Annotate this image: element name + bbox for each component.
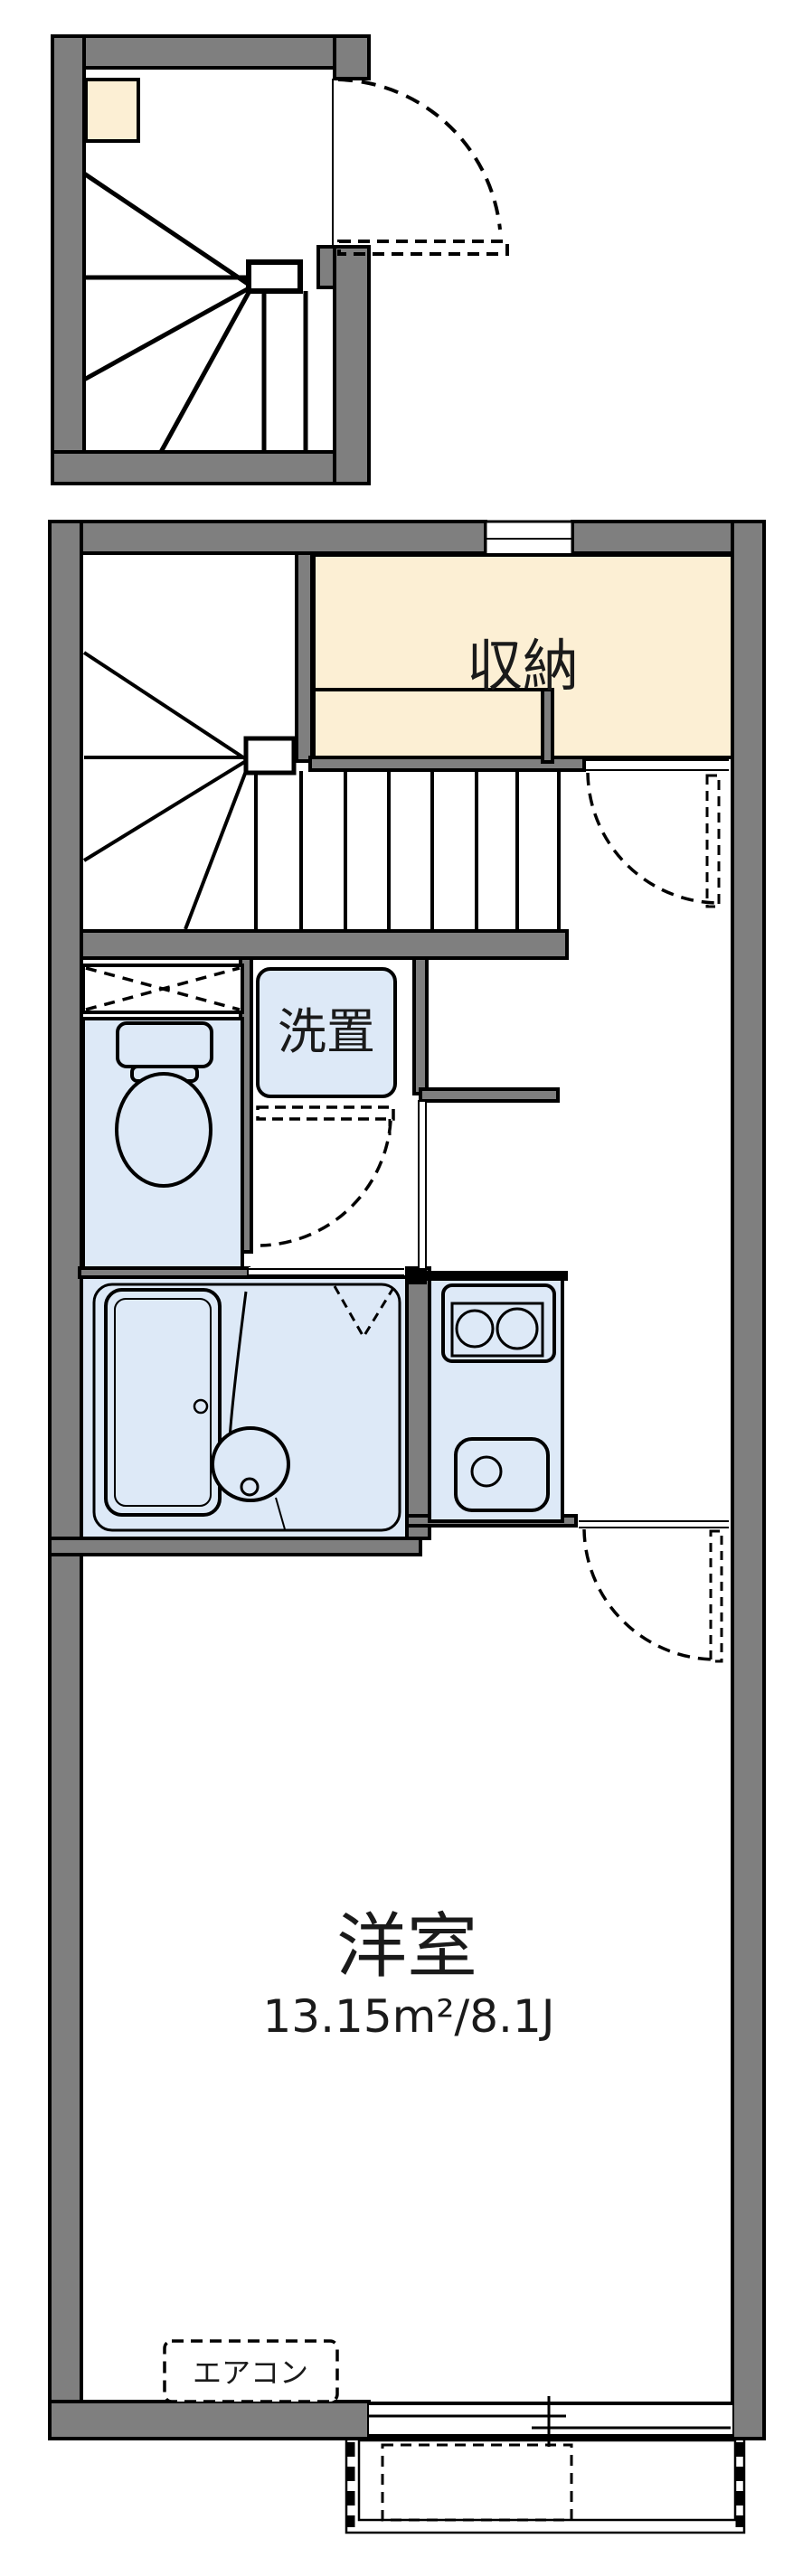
winder-stairs-1f [84,174,306,452]
closet-box-1f [86,80,138,141]
stairwell-1f [52,36,507,484]
laundry-label: 洗置 [278,1003,375,1060]
wall [297,553,312,761]
stair-tread [84,761,246,860]
lavatory-door-arc [260,1121,391,1246]
closet-label: 収納 [467,633,579,699]
bathroom [81,1267,407,1538]
balcony-hatch [382,2445,571,2520]
wall [50,2402,369,2439]
wall [335,36,369,79]
floor-plan-page: 収納 [0,0,812,2576]
hall-door [586,760,729,907]
aircon-label: エアコン [193,2355,308,2390]
main-room-door [579,1521,729,1661]
main-room-label: 洋室 [336,1906,477,1988]
aircon-box: エアコン [165,2341,337,2402]
kitchen-counter [426,1271,568,1521]
lavatory-door-leaf [258,1107,393,1119]
lavatory-door [258,1107,393,1246]
wall [50,1538,420,1555]
fridge-niche-wall [420,1089,558,1101]
stair-tread [84,174,250,286]
partition-line [419,1101,426,1271]
window-top [486,522,572,559]
hall-door-arc [588,773,716,903]
wall [732,522,764,2439]
balcony [346,2439,744,2533]
wall [52,452,369,484]
floor-plan-drawing: 収納 [0,0,812,2576]
laundry-pan: 洗置 [258,969,395,1096]
hall-door-leaf [707,776,719,907]
toilet-fixture [117,1023,212,1186]
wall [407,1268,430,1538]
wall [335,247,369,484]
wall [52,36,369,68]
toilet-room [83,1019,242,1268]
door-jamb [318,247,335,287]
wall [52,36,84,484]
closet-partition [543,690,552,762]
main-room-area: 13.15m²/8.1J [263,1990,555,2043]
room-door-arc [584,1529,716,1659]
room-door-leaf [711,1531,722,1661]
wall [50,522,486,553]
fridge-niche-wall [414,958,427,1094]
wall [81,931,567,958]
entry-door-arc [338,80,500,230]
wall [50,522,81,2439]
closet-room: 収納 [314,555,732,762]
stair-landing [249,262,300,291]
stair-tread [84,653,246,759]
stair-landing-2f [246,738,294,773]
overhead-shelf [83,965,242,1012]
main-unit-2f: 収納 [50,522,764,2533]
